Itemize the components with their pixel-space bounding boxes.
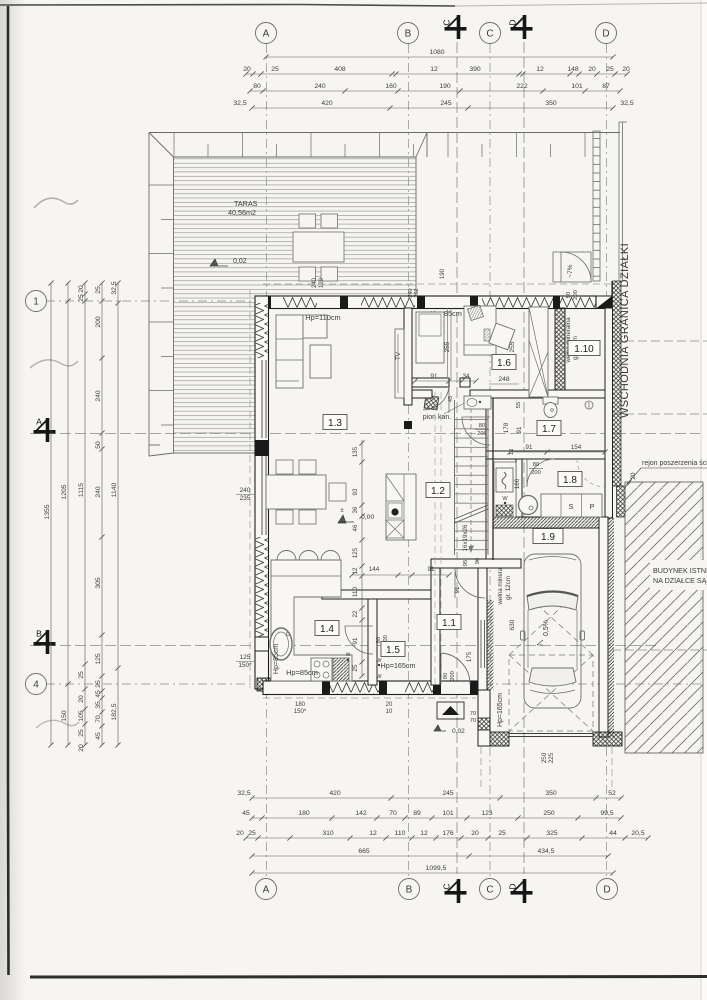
- svg-text:70: 70: [389, 810, 397, 817]
- svg-text:665: 665: [358, 848, 370, 855]
- svg-text:175: 175: [466, 651, 473, 662]
- svg-text:C: C: [442, 883, 452, 889]
- svg-text:1080: 1080: [429, 49, 444, 56]
- svg-text:180: 180: [298, 810, 310, 817]
- svg-text:1115: 1115: [78, 483, 85, 497]
- svg-text:pion kan.: pion kan.: [423, 414, 451, 421]
- svg-text:1.9: 1.9: [541, 532, 555, 543]
- svg-text:Hp=165cm: Hp=165cm: [381, 661, 416, 670]
- svg-text:45: 45: [95, 690, 102, 698]
- svg-text:BUDYNEK ISTNIEJ: BUDYNEK ISTNIEJ: [653, 566, 707, 575]
- svg-text:1.4: 1.4: [320, 624, 334, 635]
- svg-text:1.3: 1.3: [328, 418, 342, 429]
- svg-text:148: 148: [567, 66, 579, 73]
- svg-text:TV: TV: [395, 351, 402, 360]
- svg-text:D: D: [508, 19, 518, 25]
- svg-text:D: D: [603, 884, 610, 895]
- svg-text:1.6: 1.6: [497, 358, 511, 369]
- svg-text:91: 91: [428, 566, 435, 573]
- svg-text:20: 20: [78, 695, 85, 703]
- svg-text:91: 91: [454, 586, 461, 593]
- svg-text:32,5: 32,5: [111, 281, 118, 294]
- svg-text:W: W: [502, 496, 508, 502]
- svg-text:125: 125: [95, 653, 102, 665]
- svg-text:25: 25: [498, 830, 506, 837]
- svg-text:70: 70: [95, 715, 102, 723]
- svg-text:142: 142: [355, 810, 367, 817]
- svg-text:434,5: 434,5: [537, 848, 554, 855]
- svg-text:250: 250: [541, 752, 548, 763]
- svg-text:166: 166: [514, 478, 521, 489]
- svg-text:12: 12: [509, 449, 515, 455]
- svg-text:91: 91: [526, 444, 533, 451]
- svg-text:110: 110: [352, 587, 359, 597]
- svg-text:45: 45: [95, 732, 102, 740]
- svg-text:200: 200: [450, 671, 456, 681]
- svg-text:W: W: [376, 658, 382, 664]
- svg-text:255: 255: [444, 341, 451, 352]
- svg-text:248: 248: [498, 376, 510, 383]
- svg-text:89: 89: [413, 810, 421, 817]
- svg-text:20: 20: [471, 830, 479, 837]
- svg-text:144: 144: [369, 566, 380, 573]
- svg-text:B: B: [36, 629, 42, 639]
- svg-text:20: 20: [78, 744, 85, 752]
- svg-text:20: 20: [386, 702, 393, 708]
- svg-text:C: C: [442, 19, 452, 25]
- svg-text:129: 129: [319, 277, 325, 288]
- svg-text:32,5: 32,5: [233, 100, 246, 107]
- svg-text:245: 245: [440, 100, 452, 107]
- svg-text:350: 350: [545, 790, 557, 797]
- svg-text:P: P: [589, 502, 594, 511]
- svg-text:12: 12: [420, 830, 428, 837]
- svg-text:A: A: [36, 417, 42, 427]
- svg-text:80: 80: [443, 673, 449, 679]
- svg-text:305: 305: [95, 577, 102, 589]
- svg-text:0,5%: 0,5%: [543, 620, 550, 636]
- svg-text:D: D: [508, 883, 518, 889]
- svg-text:125: 125: [240, 654, 251, 661]
- svg-text:TARAS: TARAS: [234, 199, 258, 208]
- svg-text:154: 154: [571, 444, 582, 451]
- svg-text:gr. 12cm: gr. 12cm: [505, 576, 512, 600]
- svg-text:178: 178: [503, 422, 510, 433]
- svg-text:1.8: 1.8: [563, 475, 577, 486]
- svg-text:50: 50: [566, 292, 572, 298]
- svg-text:Hp=110cm: Hp=110cm: [305, 313, 340, 322]
- svg-text:NA DZIAŁCE SĄSIE: NA DZIAŁCE SĄSIE: [653, 576, 707, 585]
- svg-text:110: 110: [395, 830, 406, 837]
- svg-text:1: 1: [33, 296, 39, 307]
- svg-text:32,5: 32,5: [620, 100, 633, 107]
- svg-text:S: S: [568, 502, 573, 511]
- svg-text:25: 25: [78, 729, 85, 737]
- svg-text:420: 420: [329, 790, 341, 797]
- svg-text:101: 101: [442, 810, 454, 817]
- svg-text:95: 95: [463, 560, 469, 566]
- svg-text:20,5: 20,5: [631, 830, 644, 837]
- svg-text:390: 390: [469, 66, 481, 73]
- svg-text:Hp=85cm: Hp=85cm: [286, 668, 318, 677]
- svg-text:70: 70: [470, 718, 476, 724]
- svg-text:46: 46: [352, 524, 359, 531]
- svg-text:91: 91: [516, 426, 523, 433]
- svg-text:240: 240: [314, 83, 326, 90]
- svg-text:25: 25: [78, 671, 85, 679]
- svg-text:1099,5: 1099,5: [426, 865, 447, 872]
- svg-text:91: 91: [431, 373, 438, 380]
- svg-text:35: 35: [95, 701, 102, 709]
- svg-text:Hp=85cm: Hp=85cm: [273, 644, 280, 674]
- svg-text:310: 310: [322, 830, 334, 837]
- svg-text:36: 36: [352, 506, 359, 513]
- svg-text:325: 325: [546, 830, 558, 837]
- svg-text:125: 125: [352, 547, 359, 558]
- svg-text:182,5: 182,5: [111, 703, 118, 720]
- svg-text:135: 135: [352, 446, 359, 457]
- svg-text:1205: 1205: [61, 484, 68, 499]
- svg-text:WSCHODNIA GRANICA DZIAŁKI: WSCHODNIA GRANICA DZIAŁKI: [619, 243, 631, 418]
- svg-text:1.10: 1.10: [574, 344, 594, 355]
- svg-text:10: 10: [386, 709, 393, 715]
- svg-text:20: 20: [236, 830, 244, 837]
- svg-text:32,5: 32,5: [237, 790, 250, 797]
- svg-text:20: 20: [588, 66, 596, 73]
- svg-text:50: 50: [95, 441, 102, 449]
- svg-text:150: 150: [61, 710, 68, 722]
- svg-text:52: 52: [608, 790, 616, 797]
- svg-text:C: C: [486, 28, 493, 39]
- svg-text:Hp=165cm: Hp=165cm: [497, 693, 504, 727]
- svg-text:25: 25: [95, 680, 102, 688]
- svg-text:255: 255: [509, 341, 516, 352]
- svg-text:45: 45: [448, 396, 454, 402]
- svg-text:225: 225: [548, 752, 555, 763]
- svg-text:25: 25: [248, 830, 256, 837]
- svg-text:222: 222: [516, 83, 528, 90]
- svg-text:22: 22: [352, 610, 359, 617]
- svg-text:25: 25: [606, 66, 614, 73]
- svg-text:101: 101: [571, 83, 583, 90]
- svg-text:80: 80: [253, 83, 261, 90]
- svg-text:96: 96: [475, 558, 481, 564]
- svg-text:1.7: 1.7: [542, 424, 556, 435]
- svg-text:20: 20: [78, 285, 85, 293]
- svg-text:34: 34: [463, 373, 470, 380]
- svg-text:91: 91: [352, 637, 359, 644]
- svg-text:99,5: 99,5: [600, 810, 613, 817]
- svg-text:200: 200: [573, 290, 579, 300]
- svg-text:B: B: [405, 28, 412, 39]
- svg-text:180: 180: [295, 702, 306, 708]
- svg-text:123: 123: [481, 810, 493, 817]
- svg-text:0,02: 0,02: [452, 728, 465, 735]
- svg-text:25: 25: [271, 66, 279, 73]
- svg-text:240: 240: [312, 277, 318, 288]
- svg-text:0,02: 0,02: [233, 258, 247, 265]
- svg-text:350: 350: [545, 100, 557, 107]
- svg-text:12: 12: [369, 830, 377, 837]
- svg-text:45: 45: [242, 810, 250, 817]
- svg-text:200: 200: [95, 316, 102, 328]
- svg-text:C: C: [486, 884, 493, 895]
- svg-text:4: 4: [33, 679, 39, 690]
- svg-text:25: 25: [78, 294, 85, 302]
- svg-text:240: 240: [240, 487, 251, 494]
- svg-text:176: 176: [442, 830, 454, 837]
- svg-text:160: 160: [385, 83, 397, 90]
- svg-text:1.1: 1.1: [442, 618, 456, 629]
- svg-text:44: 44: [609, 830, 617, 837]
- svg-text:93: 93: [352, 488, 359, 495]
- svg-text:80: 80: [533, 462, 539, 468]
- svg-text:20: 20: [630, 472, 637, 479]
- svg-text:~7%: ~7%: [567, 264, 574, 277]
- svg-text:0,00: 0,00: [361, 514, 374, 521]
- svg-text:25: 25: [95, 286, 102, 294]
- svg-text:55: 55: [516, 402, 522, 408]
- svg-text:200: 200: [531, 470, 541, 476]
- svg-text:190: 190: [440, 268, 446, 279]
- svg-text:630: 630: [509, 619, 516, 630]
- svg-text:40,56m2: 40,56m2: [228, 208, 256, 217]
- svg-text:87: 87: [602, 83, 610, 90]
- svg-text:240: 240: [95, 390, 102, 402]
- svg-text:1140: 1140: [111, 482, 118, 497]
- svg-text:12: 12: [352, 567, 359, 574]
- svg-text:245: 245: [442, 790, 454, 797]
- svg-text:12: 12: [536, 66, 544, 73]
- svg-text:rejon poszerzenia ści: rejon poszerzenia ści: [642, 460, 707, 467]
- svg-text:240: 240: [95, 486, 102, 498]
- svg-text:235: 235: [240, 495, 251, 502]
- svg-text:250: 250: [543, 810, 555, 817]
- svg-text:20: 20: [622, 66, 630, 73]
- svg-text:D: D: [602, 28, 609, 39]
- svg-text:408: 408: [334, 66, 346, 73]
- svg-text:25: 25: [352, 664, 359, 671]
- svg-text:16x19x26: 16x19x26: [462, 524, 469, 551]
- svg-text:B: B: [406, 884, 413, 895]
- svg-text:150*: 150*: [238, 662, 252, 669]
- svg-text:105: 105: [78, 710, 85, 722]
- svg-text:190: 190: [439, 83, 451, 90]
- svg-text:150*: 150*: [294, 709, 307, 715]
- svg-text:W: W: [376, 674, 382, 680]
- svg-text:12: 12: [430, 66, 438, 73]
- svg-text:252: 252: [414, 288, 420, 297]
- svg-text:420: 420: [321, 100, 333, 107]
- svg-text:70: 70: [470, 711, 476, 717]
- svg-text:1355: 1355: [44, 504, 51, 519]
- svg-text:1.5: 1.5: [386, 645, 400, 656]
- svg-text:20: 20: [243, 66, 251, 73]
- svg-text:A: A: [263, 884, 270, 895]
- svg-text:1.2: 1.2: [431, 486, 445, 497]
- svg-text:w: w: [345, 652, 351, 658]
- svg-text:A: A: [263, 28, 270, 39]
